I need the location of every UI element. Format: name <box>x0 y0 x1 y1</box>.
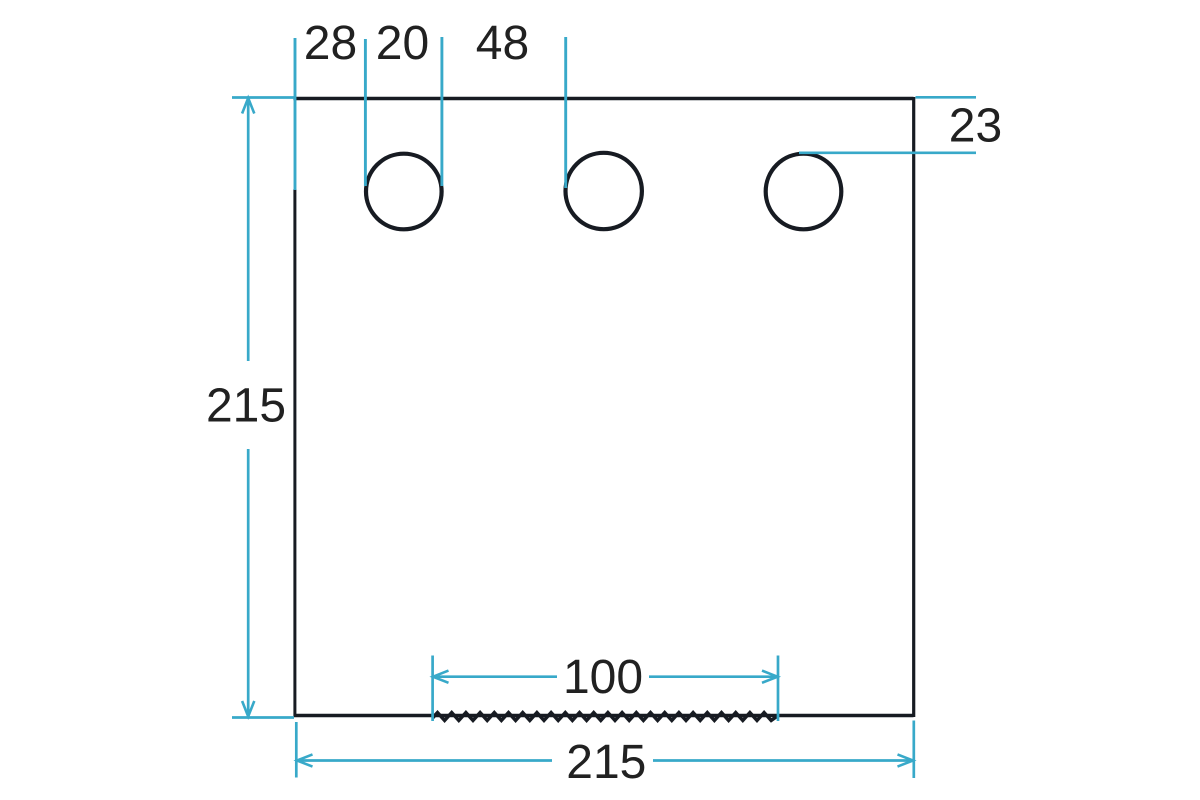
svg-text:28: 28 <box>304 17 357 70</box>
svg-text:215: 215 <box>566 736 646 789</box>
svg-text:20: 20 <box>376 17 429 70</box>
svg-text:23: 23 <box>949 100 1002 153</box>
svg-text:48: 48 <box>476 17 529 70</box>
svg-text:100: 100 <box>563 651 643 704</box>
svg-text:215: 215 <box>206 380 286 433</box>
